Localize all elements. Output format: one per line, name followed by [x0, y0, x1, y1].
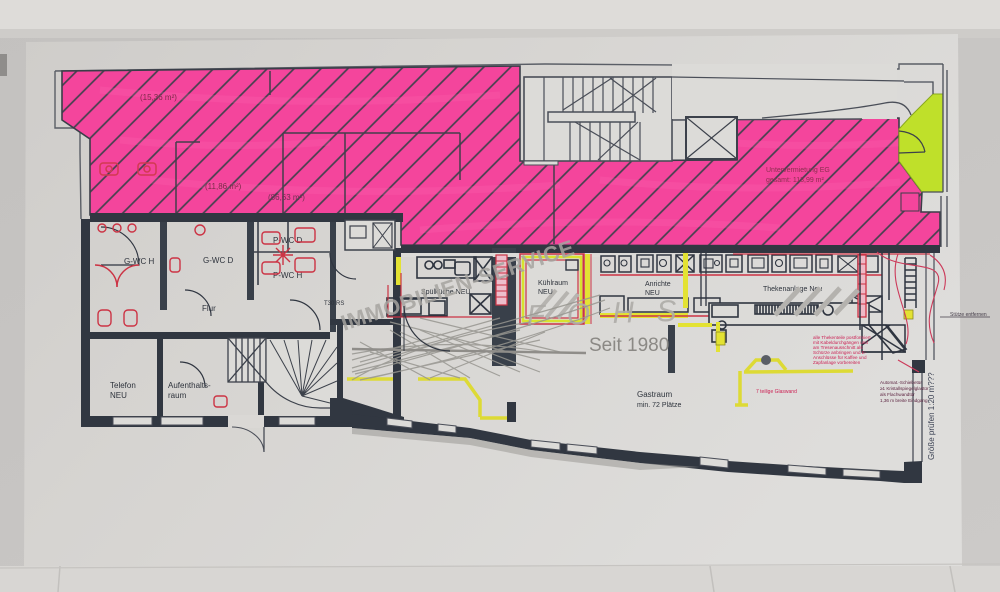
svg-text:min. 72 Plätze: min. 72 Plätze — [637, 402, 681, 409]
svg-text:≥1 Kristallspiegelglastür: ≥1 Kristallspiegelglastür — [880, 386, 929, 391]
svg-text:Kühlraum: Kühlraum — [538, 280, 568, 287]
svg-text:Telefon: Telefon — [110, 381, 136, 390]
svg-text:Anrichte: Anrichte — [645, 281, 671, 288]
svg-text:(15,36 m²): (15,36 m²) — [140, 93, 177, 102]
svg-text:Seit 1980: Seit 1980 — [589, 335, 669, 356]
svg-text:Untervermietung EG: Untervermietung EG — [766, 167, 830, 174]
svg-text:G-WC D: G-WC D — [203, 256, 233, 265]
svg-text:Gastraum: Gastraum — [637, 390, 672, 399]
svg-text:als Flachwandtür: als Flachwandtür — [880, 392, 915, 397]
svg-text:Größe prüfen 1:20 m???: Größe prüfen 1:20 m??? — [927, 372, 936, 460]
svg-text:T30 RS: T30 RS — [324, 301, 344, 307]
svg-text:Automat.-Schiebetür: Automat.-Schiebetür — [880, 380, 922, 385]
svg-text:(11,86 m²): (11,86 m²) — [205, 182, 242, 191]
svg-text:raum: raum — [168, 391, 187, 400]
svg-text:Zapfanlage vorbereiten: Zapfanlage vorbereiten — [813, 360, 861, 365]
svg-text:NEU: NEU — [538, 289, 553, 296]
svg-text:7 teilige Glaswand: 7 teilige Glaswand — [756, 389, 797, 395]
svg-text:NEU: NEU — [110, 391, 127, 400]
svg-text:gesamt: 113,99 m²: gesamt: 113,99 m² — [766, 177, 825, 184]
svg-text:1,36 m breite Eindgang: 1,36 m breite Eindgang — [880, 398, 928, 403]
svg-text:(86,63 m²): (86,63 m²) — [268, 193, 305, 202]
